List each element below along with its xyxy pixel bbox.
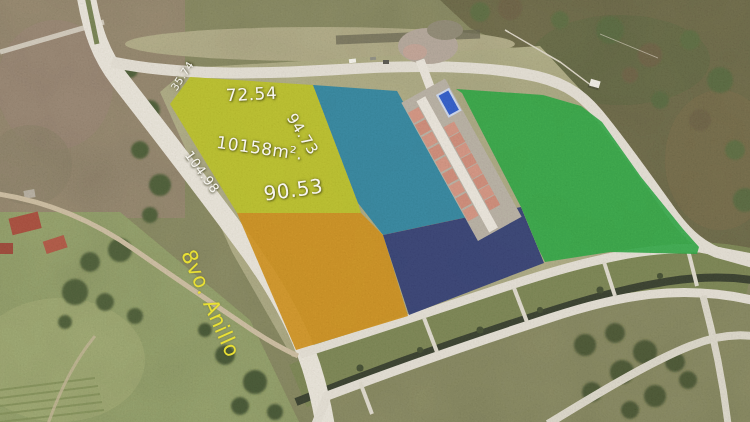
photo-grain-light [0,0,750,422]
aerial-parcel-photo: 72.54 35.74 10158m². 94.73 104.98 90.53 … [0,0,750,422]
aerial-scene [0,0,750,422]
measurement-top-side: 72.54 [226,83,278,106]
